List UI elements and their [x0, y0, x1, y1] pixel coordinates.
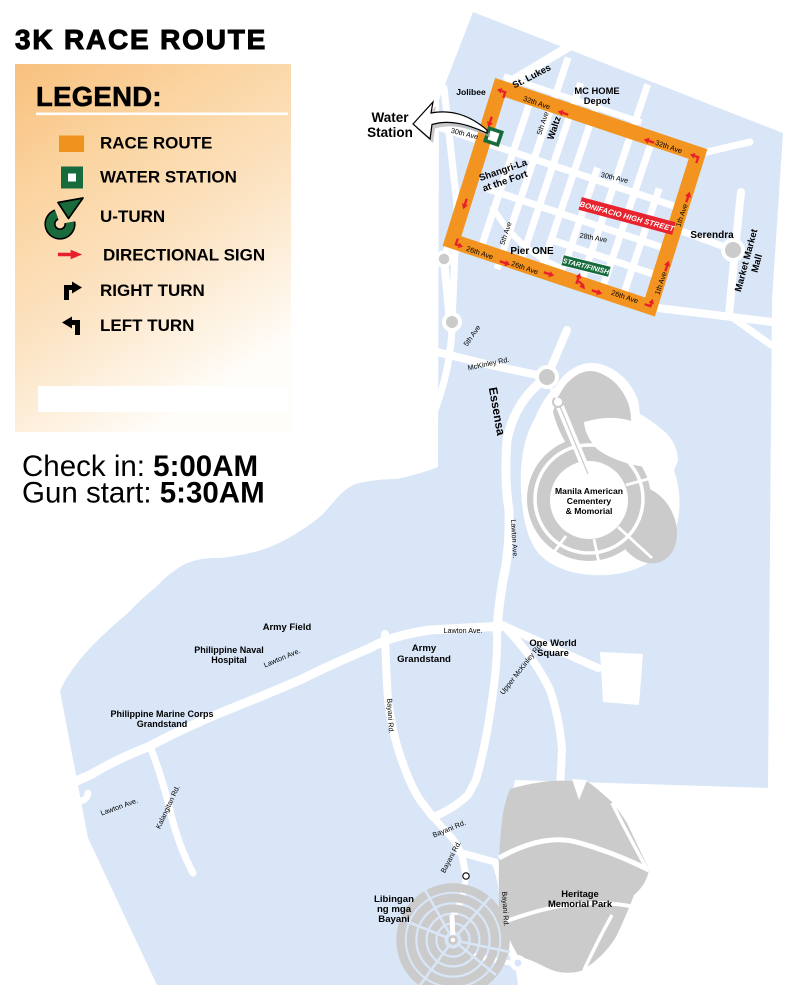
svg-text:3K RACE ROUTE: 3K RACE ROUTE	[15, 24, 267, 55]
svg-text:LEGEND:: LEGEND:	[36, 81, 162, 112]
svg-text:Depot: Depot	[584, 95, 611, 106]
svg-text:Bayani Rd.: Bayani Rd.	[500, 891, 511, 927]
svg-text:Philippine Naval: Philippine Naval	[194, 645, 264, 655]
svg-text:Pier ONE: Pier ONE	[510, 246, 554, 257]
svg-text:U-TURN: U-TURN	[100, 207, 165, 226]
svg-text:Cementery: Cementery	[567, 496, 612, 506]
svg-text:DIRECTIONAL SIGN: DIRECTIONAL SIGN	[103, 246, 265, 265]
svg-text:Army Field: Army Field	[263, 621, 312, 632]
svg-text:RIGHT TURN: RIGHT TURN	[100, 281, 205, 300]
svg-text:Lawton Ave.: Lawton Ave.	[443, 626, 482, 635]
svg-text:Army: Army	[412, 643, 437, 654]
svg-text:Serendra: Serendra	[690, 230, 734, 241]
svg-text:WATER STATION: WATER STATION	[100, 168, 237, 187]
svg-text:& Momorial: & Momorial	[566, 506, 613, 516]
svg-text:Memorial Park: Memorial Park	[548, 898, 613, 909]
svg-text:Bayani Rd.: Bayani Rd.	[385, 698, 396, 734]
svg-text:Grandstand: Grandstand	[137, 719, 188, 729]
svg-text:Philippine Marine Corps: Philippine Marine Corps	[110, 709, 213, 719]
svg-text:Hospital: Hospital	[211, 655, 247, 665]
svg-text:Jolibee: Jolibee	[456, 87, 486, 97]
svg-text:RACE ROUTE: RACE ROUTE	[100, 134, 212, 153]
svg-text:Gun start: 5:30AM: Gun start: 5:30AM	[22, 477, 265, 510]
svg-text:Manila American: Manila American	[555, 486, 623, 496]
svg-text:Station: Station	[367, 125, 413, 140]
svg-text:Bayani: Bayani	[378, 914, 409, 925]
svg-text:LEFT TURN: LEFT TURN	[100, 316, 194, 335]
svg-text:Water: Water	[371, 110, 409, 125]
svg-text:Grandstand: Grandstand	[397, 654, 451, 665]
